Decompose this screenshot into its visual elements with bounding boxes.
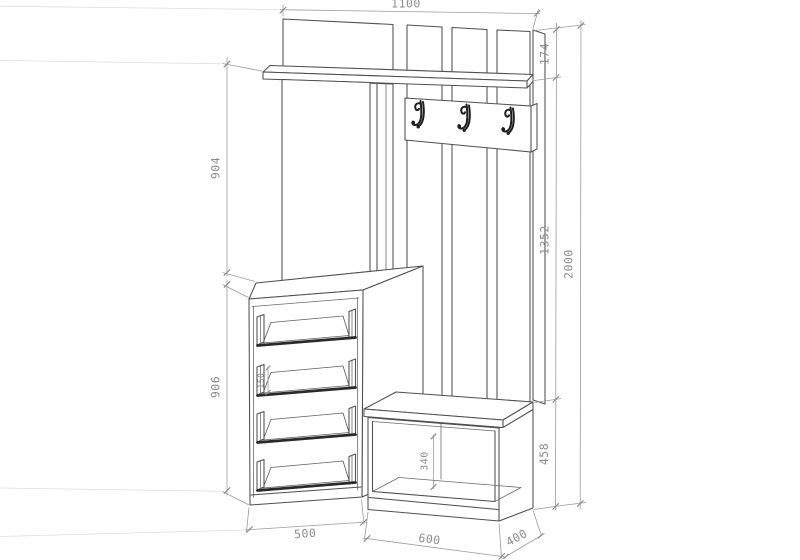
dim-right-inner-column: 174 1352 458: [534, 23, 562, 510]
page: 1100 904 906 174: [0, 0, 800, 560]
dim-mid-section-height-label: 1352: [538, 225, 552, 255]
dim-top-rail-height-label: 174: [538, 43, 552, 65]
dim-overall-width-label: 1100: [391, 0, 421, 11]
dim-shelf-to-cabinet-label: 904: [209, 157, 223, 179]
furniture-drawing: 1100 904 906 174: [0, 0, 800, 560]
construction-lines: [0, 6, 280, 536]
dim-bench-height-label: 458: [537, 443, 551, 465]
dim-overall-height-label: 2000: [562, 249, 576, 279]
center-stile: [377, 83, 393, 272]
dim-bench-width-label: 600: [418, 531, 442, 548]
dim-overall-height: 2000: [561, 21, 586, 510]
dim-cabinet-width: 500: [245, 500, 367, 542]
dim-drawer-side-label: 150: [257, 373, 266, 389]
mirror-panel: [282, 80, 370, 281]
dim-bench-inner-label: 340: [420, 451, 431, 471]
dim-cabinet-width-label: 500: [294, 526, 317, 542]
dim-bench-depth-label: 400: [503, 526, 529, 549]
bench: [364, 392, 533, 521]
dim-cabinet-height-label: 906: [209, 376, 223, 398]
right-side-wall: [533, 30, 545, 404]
